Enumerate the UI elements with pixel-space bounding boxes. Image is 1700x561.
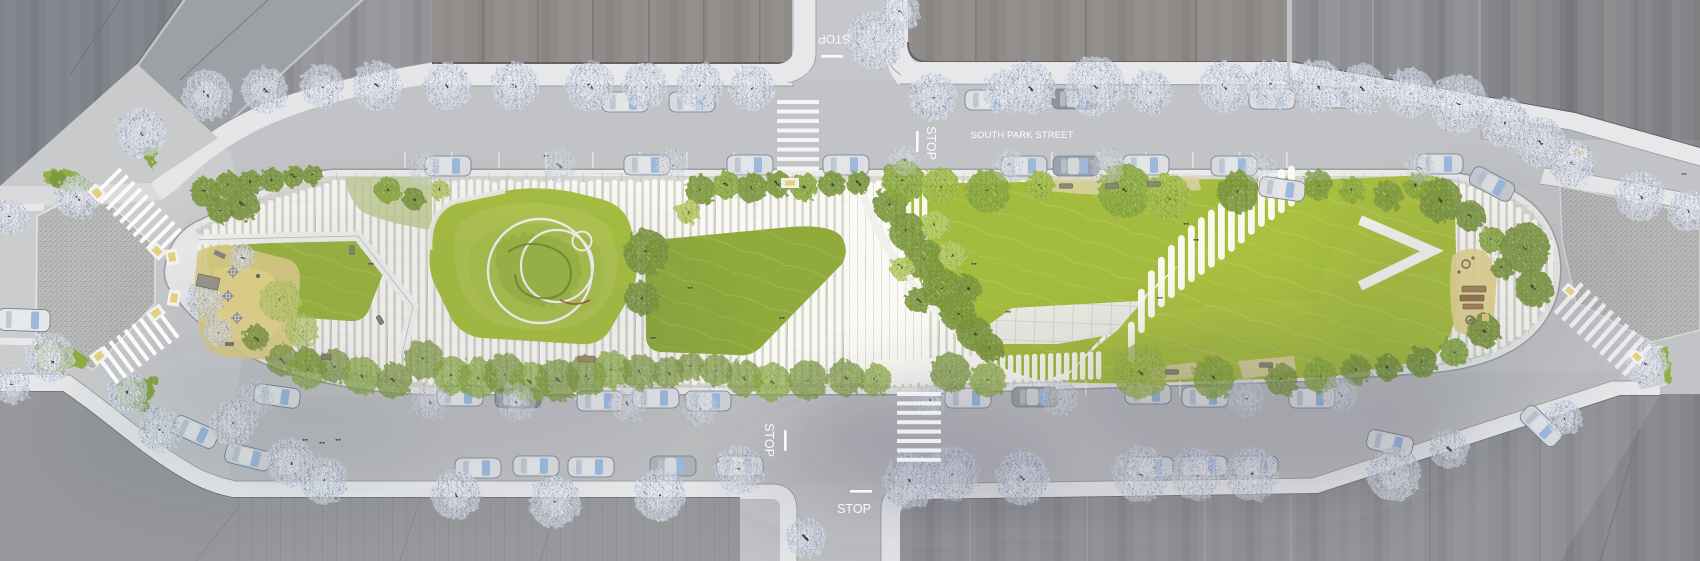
svg-text:SOUTH PARK STREET: SOUTH PARK STREET: [971, 130, 1074, 141]
svg-text:STOP: STOP: [818, 32, 850, 46]
svg-text:STOP: STOP: [762, 423, 776, 457]
svg-text:STOP: STOP: [924, 126, 938, 160]
svg-text:STOP: STOP: [837, 502, 871, 516]
